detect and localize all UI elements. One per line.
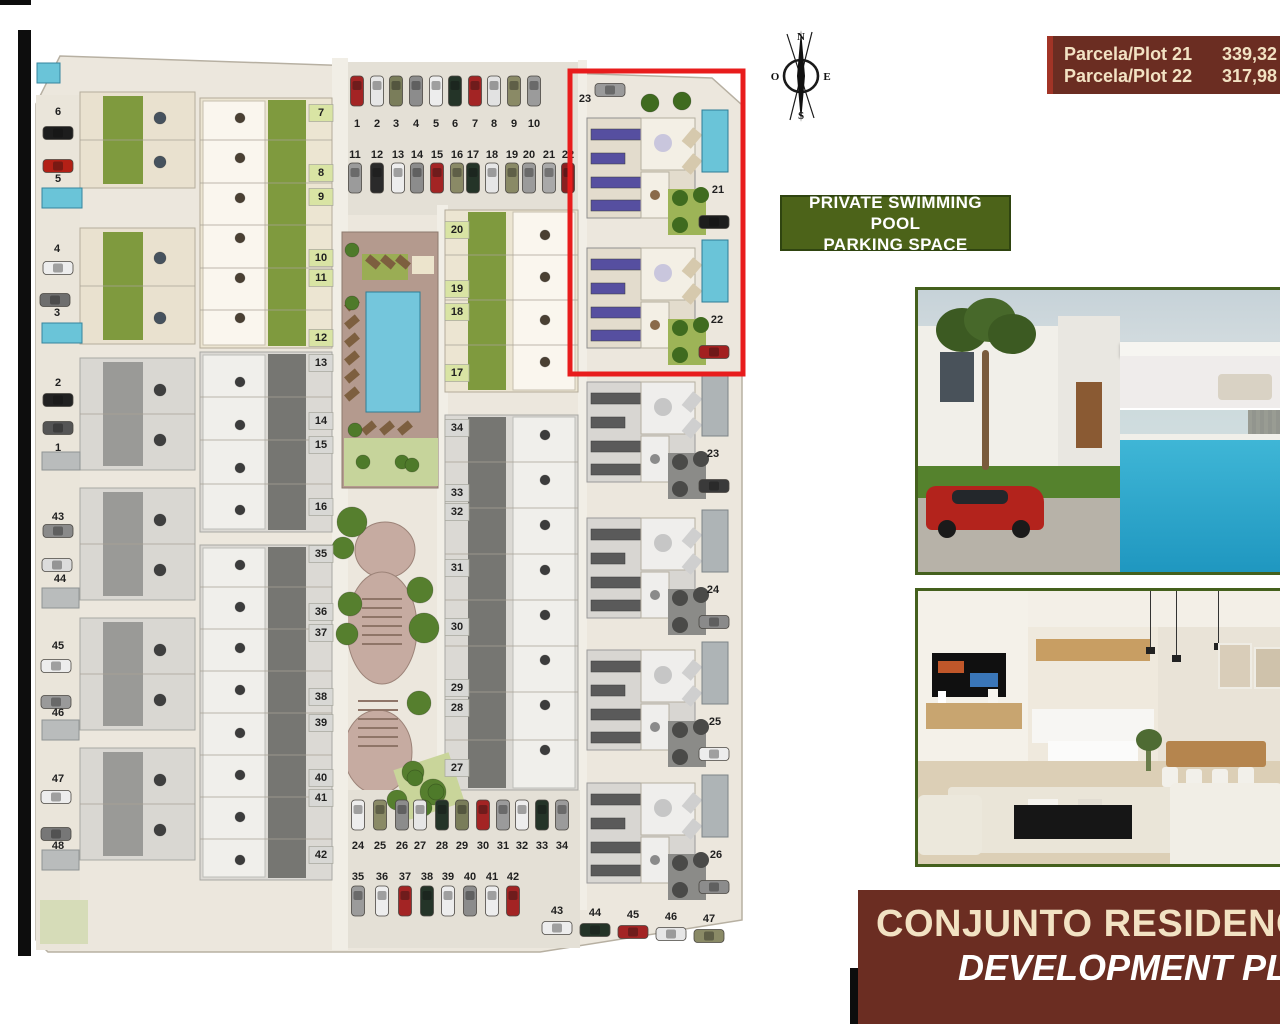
table-icon — [235, 855, 245, 865]
terrace-table — [654, 799, 672, 817]
kitchen-island — [1048, 741, 1138, 761]
table-icon — [540, 430, 550, 440]
table-icon — [154, 694, 166, 706]
plot-number-label: 3 — [54, 307, 60, 319]
table-icon — [154, 312, 166, 324]
solar-panels — [591, 417, 625, 428]
patio-table — [650, 590, 660, 600]
plot-label: Parcela/Plot 22 — [1064, 65, 1192, 87]
plot-number-label: 36 — [315, 606, 327, 618]
plot-number-label: 36 — [376, 871, 388, 883]
plot-number-label: 28 — [451, 702, 463, 714]
tree-icon — [672, 855, 688, 871]
plot-number-label: 21 — [712, 184, 724, 196]
car-icon — [371, 76, 384, 106]
car-icon — [411, 163, 424, 193]
plot-number-label: 13 — [392, 149, 404, 161]
car-icon — [352, 886, 365, 916]
table-icon — [154, 564, 166, 576]
plot-number-label: 1 — [55, 442, 61, 454]
table-icon — [154, 774, 166, 786]
plot-number-label: 7 — [318, 107, 324, 119]
tree-icon — [672, 882, 688, 898]
plot-number-label: 13 — [315, 357, 327, 369]
communal-pool — [366, 292, 420, 412]
plot-number-label: 18 — [451, 306, 463, 318]
plot-number-label: 11 — [349, 149, 361, 161]
pool — [702, 110, 728, 172]
plot-number-label: 29 — [451, 682, 463, 694]
site-plan: 1234567891011121314151617181920212224252… — [30, 35, 746, 955]
plot-number-label: 19 — [506, 149, 518, 161]
tree-icon — [672, 347, 688, 363]
compass-icon: N S O E — [757, 24, 845, 128]
car-window — [351, 168, 360, 177]
sofa — [1170, 783, 1280, 864]
books — [1028, 799, 1058, 805]
car-window — [432, 81, 441, 90]
car-icon — [467, 163, 480, 193]
tree-icon — [672, 722, 688, 738]
patio-table — [650, 190, 660, 200]
table-icon — [235, 420, 245, 430]
tree-icon — [405, 458, 419, 472]
table-icon — [235, 313, 245, 323]
car-window — [52, 561, 62, 570]
car-window — [488, 168, 497, 177]
plot-row: Parcela/Plot 22 317,98 — [1064, 65, 1280, 87]
car-icon — [399, 886, 412, 916]
car-icon — [543, 163, 556, 193]
plot-number-label: 24 — [707, 584, 720, 596]
plot-number-label: 28 — [436, 840, 448, 852]
car-icon — [516, 800, 529, 830]
garden-strip — [268, 354, 306, 530]
car-window — [509, 891, 518, 900]
plot-number-label: 20 — [523, 149, 535, 161]
plot-number-label: 20 — [451, 224, 463, 236]
plot-number-label: 35 — [315, 548, 327, 560]
car-window — [376, 805, 385, 814]
wheel — [1012, 520, 1030, 538]
vase — [938, 691, 946, 703]
table-icon — [235, 233, 245, 243]
development-title-banner: CONJUNTO RESIDENCIAL DEVELOPMENT PLAN — [858, 890, 1280, 1024]
table-icon — [154, 252, 166, 264]
car-icon — [469, 76, 482, 106]
plot-number-label: 40 — [464, 871, 476, 883]
car-window — [53, 424, 63, 433]
car-window — [354, 891, 363, 900]
car-window — [458, 805, 467, 814]
plot-number-label: 30 — [451, 621, 463, 633]
table-icon — [235, 463, 245, 473]
car-window — [433, 168, 442, 177]
table-icon — [235, 193, 245, 203]
solar-panels — [591, 818, 625, 829]
car-window — [394, 168, 403, 177]
plot-number-label: 15 — [315, 439, 327, 451]
table-icon — [235, 153, 245, 163]
car-icon — [396, 800, 409, 830]
site-plan-drawing: 1234567891011121314151617181920212224252… — [30, 35, 746, 955]
car-icon — [507, 886, 520, 916]
tree-icon — [641, 94, 659, 112]
car-window — [373, 168, 382, 177]
plot-number-label: 17 — [467, 149, 479, 161]
car-window — [413, 168, 422, 177]
car-window — [50, 296, 60, 305]
car-window — [510, 81, 519, 90]
plot-number-label: 12 — [315, 332, 327, 344]
plot-number-label: 46 — [665, 911, 677, 923]
plot-number-label: 44 — [589, 907, 602, 919]
stair — [362, 634, 402, 636]
car-window — [453, 168, 462, 177]
plot-number-label: 45 — [627, 909, 639, 921]
table-icon — [154, 384, 166, 396]
table-icon — [540, 357, 550, 367]
plot-number-label: 16 — [315, 501, 327, 513]
plot-number-label: 11 — [315, 272, 327, 284]
table-icon — [154, 514, 166, 526]
solar-panels — [591, 685, 625, 696]
pendant-cord — [1218, 591, 1219, 645]
pool — [702, 374, 728, 436]
car-icon — [556, 800, 569, 830]
terrace-table — [654, 264, 672, 282]
table-icon — [540, 745, 550, 755]
books — [1078, 799, 1102, 805]
pool — [42, 323, 82, 343]
garden-strip — [468, 212, 506, 390]
car-icon — [414, 800, 427, 830]
tree-icon — [407, 770, 423, 786]
table-icon — [540, 475, 550, 485]
pool — [42, 588, 79, 608]
compass-e: E — [823, 71, 830, 83]
car-icon — [451, 163, 464, 193]
stair — [362, 625, 402, 627]
car-window — [412, 81, 421, 90]
table-icon — [235, 113, 245, 123]
car-window — [378, 891, 387, 900]
plot-number-label: 37 — [315, 627, 327, 639]
plot-number-label: 21 — [543, 149, 555, 161]
development-plan-flyer: 1234567891011121314151617181920212224252… — [0, 0, 1280, 1024]
lawn — [40, 900, 88, 944]
roof-slab — [1120, 342, 1280, 356]
car-window — [709, 883, 719, 892]
plot-number-label: 2 — [374, 118, 380, 130]
tree-icon — [345, 296, 359, 310]
tv-content — [938, 661, 964, 673]
car-window — [53, 264, 63, 273]
stair — [362, 616, 402, 618]
plot-number-label: 42 — [315, 849, 327, 861]
car-icon — [390, 76, 403, 106]
car-window — [401, 891, 410, 900]
plot-number-label: 25 — [374, 840, 386, 852]
tree-icon — [407, 577, 433, 603]
patio-table — [650, 454, 660, 464]
table-icon — [540, 315, 550, 325]
tree-icon — [672, 481, 688, 497]
car-icon — [486, 163, 499, 193]
tree-icon — [332, 537, 354, 559]
car-icon — [449, 76, 462, 106]
car-window — [466, 891, 475, 900]
tree-icon — [338, 592, 362, 616]
car-window — [51, 698, 61, 707]
title-line-spanish: CONJUNTO RESIDENCIAL — [876, 903, 1280, 946]
car-window — [590, 926, 600, 935]
car-window — [392, 81, 401, 90]
plot-number-label: 41 — [315, 792, 327, 804]
patio-table — [650, 855, 660, 865]
tree-icon — [345, 243, 359, 257]
plot-number-label: 18 — [486, 149, 498, 161]
table-icon — [235, 273, 245, 283]
car-window — [508, 168, 517, 177]
plot-number-label: 23 — [579, 93, 591, 105]
pendant-cord — [1176, 591, 1177, 657]
plot-number-label: 39 — [315, 717, 327, 729]
car-icon — [431, 163, 444, 193]
car-window — [469, 168, 478, 177]
plant-icon — [1136, 729, 1162, 751]
table-icon — [235, 560, 245, 570]
compass-s: S — [798, 110, 804, 122]
tree-icon — [672, 617, 688, 633]
solar-panels — [591, 283, 625, 294]
car-icon — [523, 163, 536, 193]
car-icon — [464, 886, 477, 916]
plot-number-label: 44 — [54, 573, 67, 585]
plot-number-label: 3 — [393, 118, 399, 130]
car-window — [488, 891, 497, 900]
plot-number-label: 7 — [472, 118, 478, 130]
tree-icon — [673, 92, 691, 110]
tree-icon — [409, 613, 439, 643]
car-icon — [376, 886, 389, 916]
plot-number-label: 33 — [536, 840, 548, 852]
plot-number-label: 48 — [52, 840, 64, 852]
plot-number-label: 43 — [52, 511, 64, 523]
upper-cabinets — [1036, 639, 1150, 661]
tree-icon — [336, 623, 358, 645]
dining-table — [1166, 741, 1266, 767]
coffee-table — [1014, 805, 1132, 839]
car-window — [709, 750, 719, 759]
terrace-table — [654, 134, 672, 152]
window — [940, 352, 974, 402]
table-icon — [540, 230, 550, 240]
plot-number-label: 24 — [352, 840, 365, 852]
car-window — [471, 81, 480, 90]
pool — [702, 240, 728, 302]
tree-icon — [672, 217, 688, 233]
table-icon — [540, 655, 550, 665]
tree-icon — [407, 691, 431, 715]
plot-number-label: 6 — [452, 118, 458, 130]
plot-number-label: 2 — [55, 377, 61, 389]
stair — [358, 736, 398, 738]
tree-icon — [356, 455, 370, 469]
tree-icon — [672, 190, 688, 206]
tree-icon — [693, 317, 709, 333]
solar-panels — [591, 553, 625, 564]
plot-number-label: 1 — [354, 118, 360, 130]
plot-number-label: 9 — [511, 118, 517, 130]
pool — [42, 850, 79, 870]
plot-row: Parcela/Plot 21 339,32 — [1064, 43, 1280, 65]
plot-number-label: 40 — [315, 772, 327, 784]
plot-number-label: 17 — [451, 367, 463, 379]
table-icon — [235, 728, 245, 738]
pool — [702, 510, 728, 572]
terrace-table — [654, 666, 672, 684]
armchair — [918, 795, 982, 855]
plot-number-label: 22 — [711, 314, 723, 326]
car-window — [53, 396, 63, 405]
car-window — [479, 805, 488, 814]
car-window — [423, 891, 432, 900]
house-row — [203, 101, 265, 345]
plot-number-label: 30 — [477, 840, 489, 852]
car-icon — [430, 76, 443, 106]
plot-number-label: 33 — [451, 487, 463, 499]
plot-number-label: 12 — [371, 149, 383, 161]
plot-number-label: 46 — [52, 707, 64, 719]
title-line-english: DEVELOPMENT PLAN — [958, 947, 1280, 989]
car-window — [545, 168, 554, 177]
table-icon — [540, 520, 550, 530]
car-window — [952, 490, 1008, 504]
car-window — [444, 891, 453, 900]
house-row — [513, 417, 575, 788]
compass-n: N — [797, 31, 805, 43]
pendant-lamp-icon — [1172, 655, 1181, 662]
pool — [37, 63, 60, 83]
stair — [362, 643, 402, 645]
plot-number-label: 32 — [516, 840, 528, 852]
car-icon — [442, 886, 455, 916]
plot-number-label: 38 — [315, 691, 327, 703]
car-window — [51, 830, 61, 839]
patio-table — [650, 320, 660, 330]
plot-number-label: 8 — [491, 118, 497, 130]
car-window — [438, 805, 447, 814]
car-window — [709, 482, 719, 491]
pool — [42, 720, 79, 740]
car-window — [51, 793, 61, 802]
garden-strip — [268, 547, 306, 878]
car-icon — [352, 800, 365, 830]
tree-icon — [693, 852, 709, 868]
wood-door — [1076, 382, 1102, 448]
car-icon — [528, 76, 541, 106]
car-window — [525, 168, 534, 177]
table-icon — [154, 824, 166, 836]
plot-number-label: 4 — [54, 243, 61, 255]
wall-art — [1254, 647, 1280, 689]
plot-number-label: 16 — [451, 149, 463, 161]
car-window — [416, 805, 425, 814]
plot-area-banner: Parcela/Plot 21 339,32 Parcela/Plot 22 3… — [1047, 36, 1280, 94]
plot-number-label: 9 — [318, 191, 324, 203]
plot-number-label: 14 — [411, 149, 424, 161]
plot-number-label: 34 — [451, 422, 464, 434]
tree-icon — [693, 719, 709, 735]
sideboard — [926, 703, 1022, 729]
left-border-tick — [0, 0, 31, 5]
table-icon — [540, 610, 550, 620]
plot-number-label: 26 — [396, 840, 408, 852]
car-window — [530, 81, 539, 90]
car-window — [666, 930, 676, 939]
plot-number-label: 10 — [528, 118, 540, 130]
car-window — [704, 932, 714, 941]
car-window — [605, 86, 615, 95]
table-icon — [154, 434, 166, 446]
road — [578, 60, 587, 910]
table-icon — [154, 644, 166, 656]
car-icon — [410, 76, 423, 106]
plot-number-label: 45 — [52, 640, 64, 652]
tree-icon — [337, 507, 367, 537]
plot-area-value: 339,32 — [1222, 43, 1280, 65]
plot-number-label: 14 — [315, 415, 328, 427]
pad — [412, 256, 434, 274]
stair — [358, 745, 398, 747]
plot-number-label: 15 — [431, 149, 443, 161]
car-window — [53, 162, 63, 171]
stair — [358, 718, 398, 720]
garden-strip — [268, 100, 306, 346]
plot-number-label: 4 — [413, 118, 420, 130]
plot-number-label: 31 — [451, 562, 463, 574]
legend-line-2: PARKING SPACE — [782, 234, 1009, 255]
plot-area-value: 317,98 — [1222, 65, 1280, 87]
car-window — [558, 805, 567, 814]
table-icon — [235, 643, 245, 653]
car-window — [373, 81, 382, 90]
table-icon — [540, 565, 550, 575]
plot-number-label: 47 — [52, 773, 64, 785]
car-window — [354, 805, 363, 814]
plot-number-label: 37 — [399, 871, 411, 883]
swimming-pool — [1120, 440, 1280, 572]
interior-render-photo — [915, 588, 1280, 867]
plot-number-label: 25 — [709, 716, 721, 728]
plot-number-label: 32 — [451, 506, 463, 518]
legend-label: PRIVATE SWIMMING POOL PARKING SPACE — [780, 195, 1011, 251]
plot-number-label: 27 — [451, 762, 463, 774]
pendant-lamp-icon — [1146, 647, 1155, 654]
plot-number-label: 27 — [414, 840, 426, 852]
terrace-table — [654, 534, 672, 552]
plot-number-label: 47 — [703, 913, 715, 925]
plot-number-label: 26 — [710, 849, 722, 861]
plot-number-label: 10 — [315, 252, 327, 264]
plot-number-label: 6 — [55, 106, 61, 118]
car-icon — [374, 800, 387, 830]
car-window — [53, 129, 63, 138]
car-window — [709, 618, 719, 627]
terrace-table — [654, 398, 672, 416]
car-icon — [436, 800, 449, 830]
